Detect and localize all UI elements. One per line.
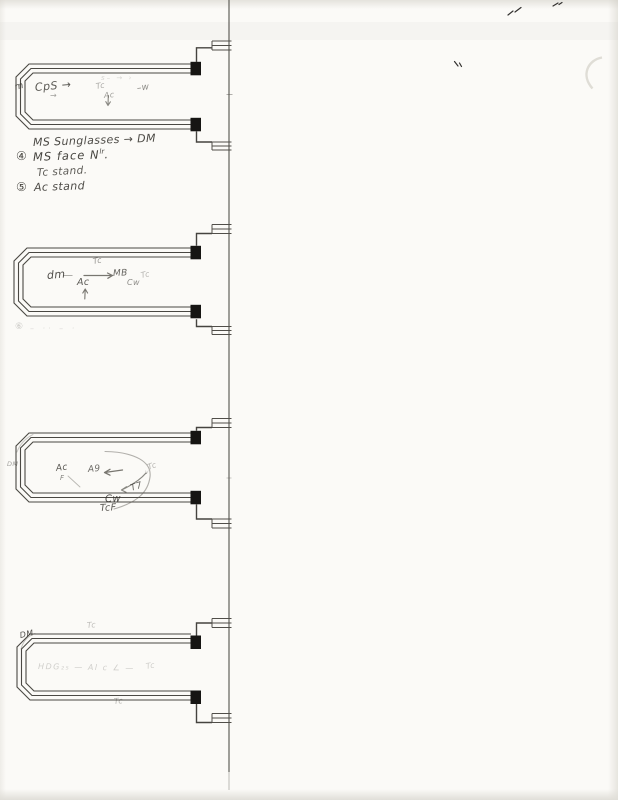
handwriting-loop1-tc: Tc <box>95 81 105 90</box>
scan-edge-right <box>608 0 618 800</box>
note-line2-period: . <box>104 147 109 161</box>
scanned-diagram-page: m CpS → → s– → › Tc Ac –w MS Sunglasses … <box>0 0 618 800</box>
left-arrow-loop3 <box>105 469 123 475</box>
scan-edge-left <box>0 0 6 800</box>
handwritten-note-line4-bullet: ⑤ <box>16 181 27 193</box>
handwriting-loop3-edge-mark: DM <box>7 461 18 468</box>
handwriting-loop1-small-arrow: → <box>50 92 57 100</box>
note-line2-text: MS face N <box>33 148 100 164</box>
loop-2-outline <box>14 248 191 316</box>
handwriting-loop2-below-bullet: ⑥ <box>15 323 23 332</box>
scan-shadow-band <box>0 22 618 40</box>
handwriting-loop1-minus-w: –w <box>136 83 150 94</box>
handwriting-loop1-faint-scribble: s– → › <box>101 75 133 82</box>
connector-elbows <box>197 48 213 723</box>
handwriting-loop2-tc-top: Tc <box>92 256 102 265</box>
handwriting-loop2-cw: Cw <box>127 279 140 287</box>
handwriting-loop1-ac: Ac <box>104 91 115 100</box>
terminal-blocks <box>191 62 202 704</box>
handwriting-loop2-mb: MB <box>113 269 128 279</box>
handwriting-loop2-ac: Ac <box>77 278 90 288</box>
handwriting-loop3-a9: A9 <box>88 465 101 475</box>
pencil-tail-loop3 <box>68 476 80 487</box>
handwriting-loop2-below-scribble: – ·· – · <box>30 325 77 333</box>
handwritten-note-line2-bullet: ④ <box>16 150 27 162</box>
handwriting-loop4-tc-bottom: Tc <box>114 697 124 706</box>
paper-curl-mark <box>587 58 602 89</box>
handwriting-loop4-tc-top: Tc <box>87 621 97 630</box>
loop-3-outline <box>16 433 191 502</box>
handwriting-loop3-ac: Ac <box>55 463 68 474</box>
handwriting-loop4-tc-right-faint: Tc <box>145 661 155 670</box>
up-arrow-loop2 <box>83 289 88 299</box>
main-vertical-line <box>227 0 233 790</box>
handwriting-loop3-f: F <box>60 475 64 482</box>
diagram-linework <box>0 0 618 800</box>
handwriting-loop4-interior-faint: HDG₂₅ — Al c ∠ — <box>38 663 135 673</box>
handwritten-note-line3: Tc stand. <box>37 165 88 178</box>
handwriting-loop2-dash: — <box>63 271 73 281</box>
handwriting-loop3-tcf: TcF <box>100 503 117 513</box>
handwritten-note-line2: MS face Nlr. <box>33 148 109 163</box>
handwritten-note-line4: Ac stand <box>34 180 85 193</box>
